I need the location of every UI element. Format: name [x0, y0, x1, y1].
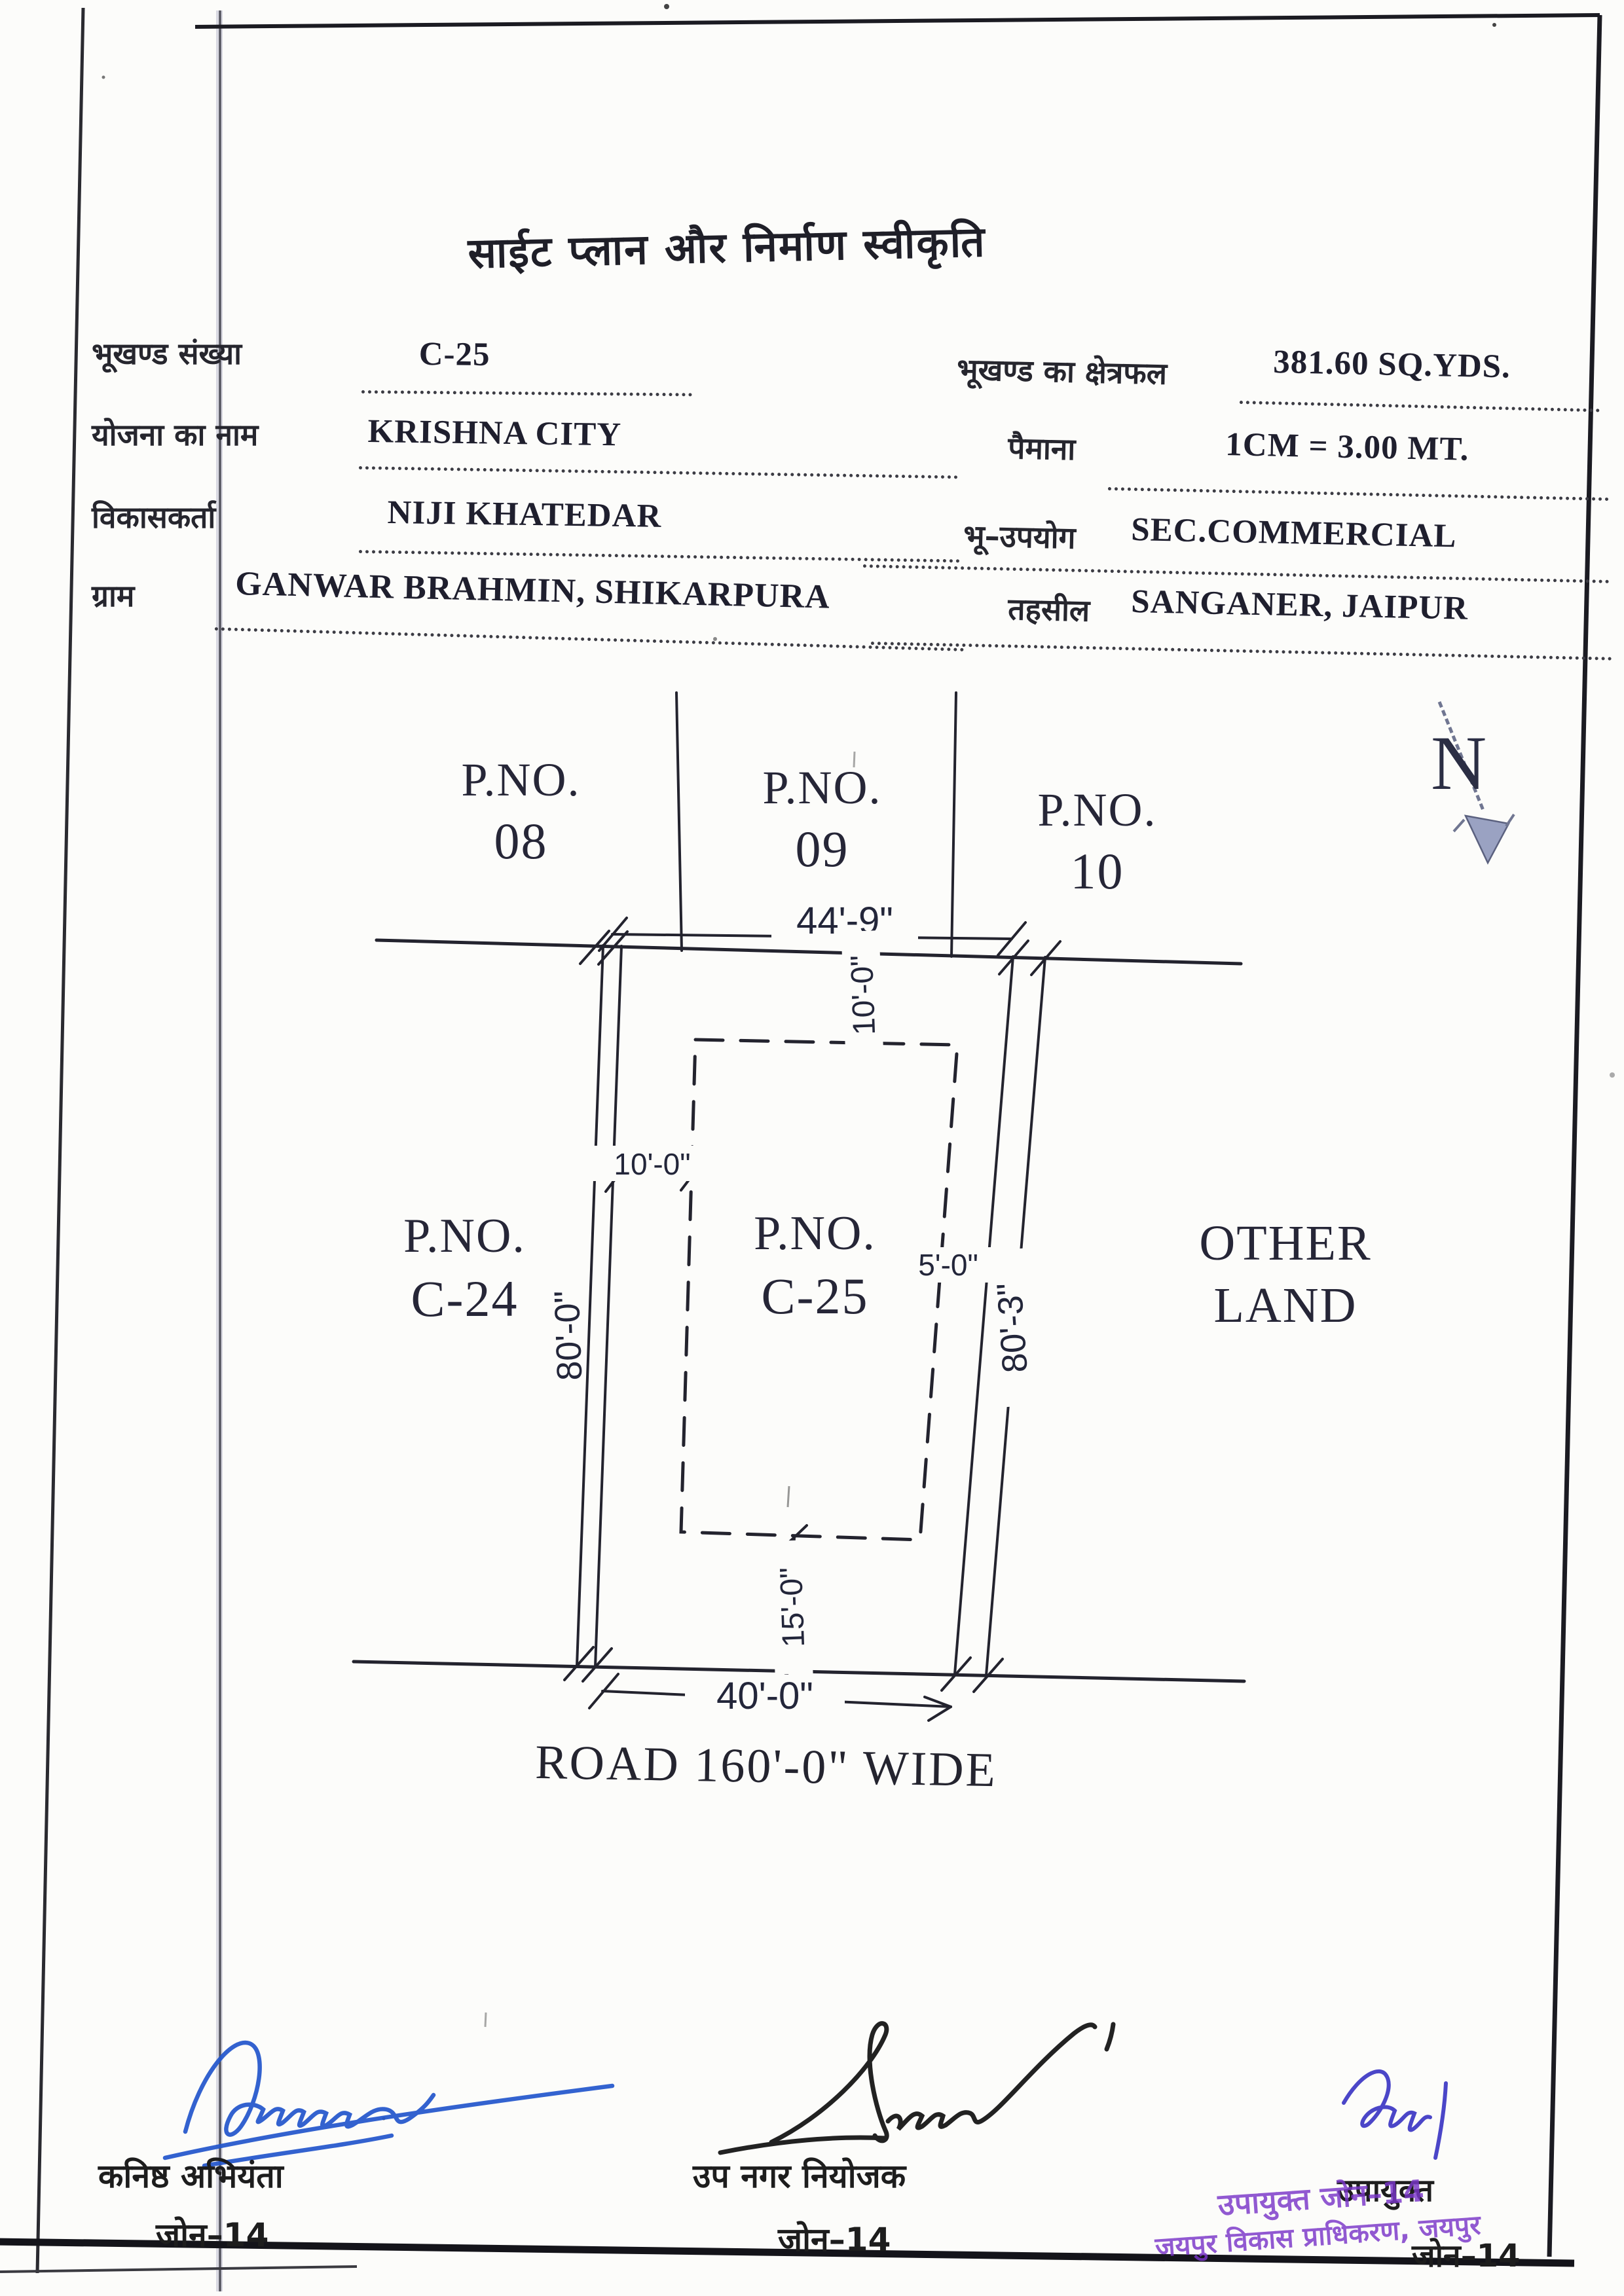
top-boundary-line	[377, 940, 1241, 964]
village-label: ग्राम	[92, 575, 134, 615]
tehsil-label: तहसील	[1008, 588, 1090, 630]
signatures-ink	[165, 2024, 1446, 2166]
plot-number-value: C-25	[418, 335, 490, 374]
signature-junior-engineer	[165, 2043, 612, 2166]
dim-bottom-width-label: 40'-0"	[716, 1675, 813, 1717]
scanned-site-plan-document: 44'-9" 10'-0" 10'-0" 5'-0" 15'-0" 80'-0"	[0, 0, 1624, 2296]
dim-rear-setback-label: 15'-0"	[774, 1567, 811, 1648]
plot-c24-label: P.NO. C-24	[388, 1206, 542, 1330]
plot-10-label: P.NO. 10	[1027, 780, 1168, 903]
dim-right-setback-label: 5'-0"	[918, 1248, 978, 1282]
plot-09-label: P.NO. 09	[752, 758, 893, 881]
junior-engineer-zone: जोन–14	[156, 2212, 268, 2256]
signature-deputy-commissioner	[1344, 2071, 1446, 2158]
land-use-value: SEC.COMMERCIAL	[1131, 511, 1457, 555]
north-label: N	[1431, 719, 1486, 808]
scale-value: 1CM = 3.00 MT.	[1225, 426, 1469, 469]
dim-right-depth-label: 80'-3"	[989, 1281, 1035, 1374]
scan-noise	[102, 4, 1615, 2121]
separator-plot08-09	[676, 693, 682, 951]
developer-label: विकासकर्ता	[92, 496, 215, 537]
plot-c25-label: P.NO. C-25	[741, 1203, 889, 1328]
site-plan-drawing: 44'-9" 10'-0" 10'-0" 5'-0" 15'-0" 80'-0"	[0, 0, 1624, 2296]
scheme-name-value: KRISHNA CITY	[367, 412, 621, 454]
plot-area-value: 381.60 SQ.YDS.	[1273, 343, 1511, 386]
separator-plot09-10	[951, 693, 956, 957]
signature-deputy-town-planner	[720, 2024, 1113, 2153]
plot-area-label: भूखण्ड का क्षेत्रफल	[957, 348, 1168, 393]
plot-08-label: P.NO. 08	[451, 750, 591, 873]
scale-label: पैमाना	[1008, 427, 1076, 469]
junior-engineer-title: कनिष्ठ अभियंता	[98, 2153, 284, 2197]
land-use-label: भू–उपयोग	[963, 515, 1076, 558]
deputy-town-planner-title: उप नगर नियोजक	[693, 2153, 906, 2197]
developer-value: NIJI KHATEDAR	[387, 494, 661, 536]
dim-front-setback-label: 10'-0"	[845, 955, 882, 1036]
scheme-name-label: योजना का नाम	[92, 414, 258, 454]
deputy-town-planner-zone: जोन–14	[778, 2216, 891, 2261]
plot-number-label: भूखण्ड संख्या	[92, 333, 242, 373]
dim-left-setback-label: 10'-0"	[614, 1147, 690, 1181]
tehsil-value: SANGANER, JAIPUR	[1131, 583, 1469, 628]
road-label: ROAD 160'-0" WIDE	[497, 1734, 1035, 1799]
dim-left-depth-label: 80'-0"	[547, 1290, 590, 1381]
other-land-label: OTHER LAND	[1177, 1212, 1393, 1337]
